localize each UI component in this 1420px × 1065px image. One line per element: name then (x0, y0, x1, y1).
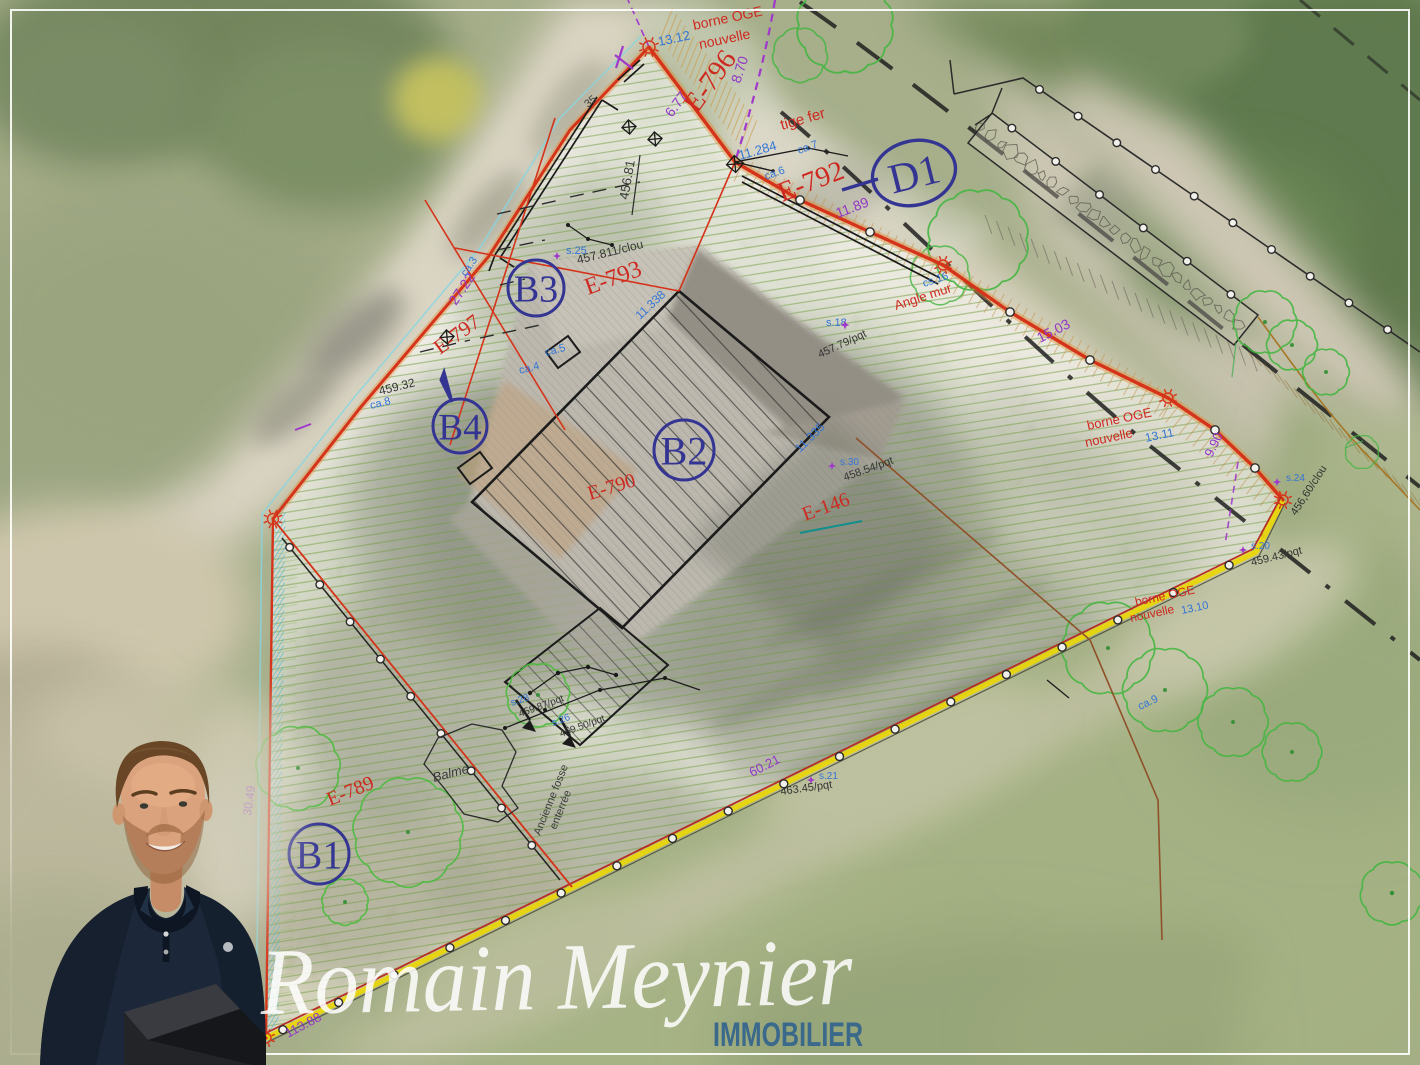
svg-text:IMMOBILIER: IMMOBILIER (713, 1016, 863, 1054)
